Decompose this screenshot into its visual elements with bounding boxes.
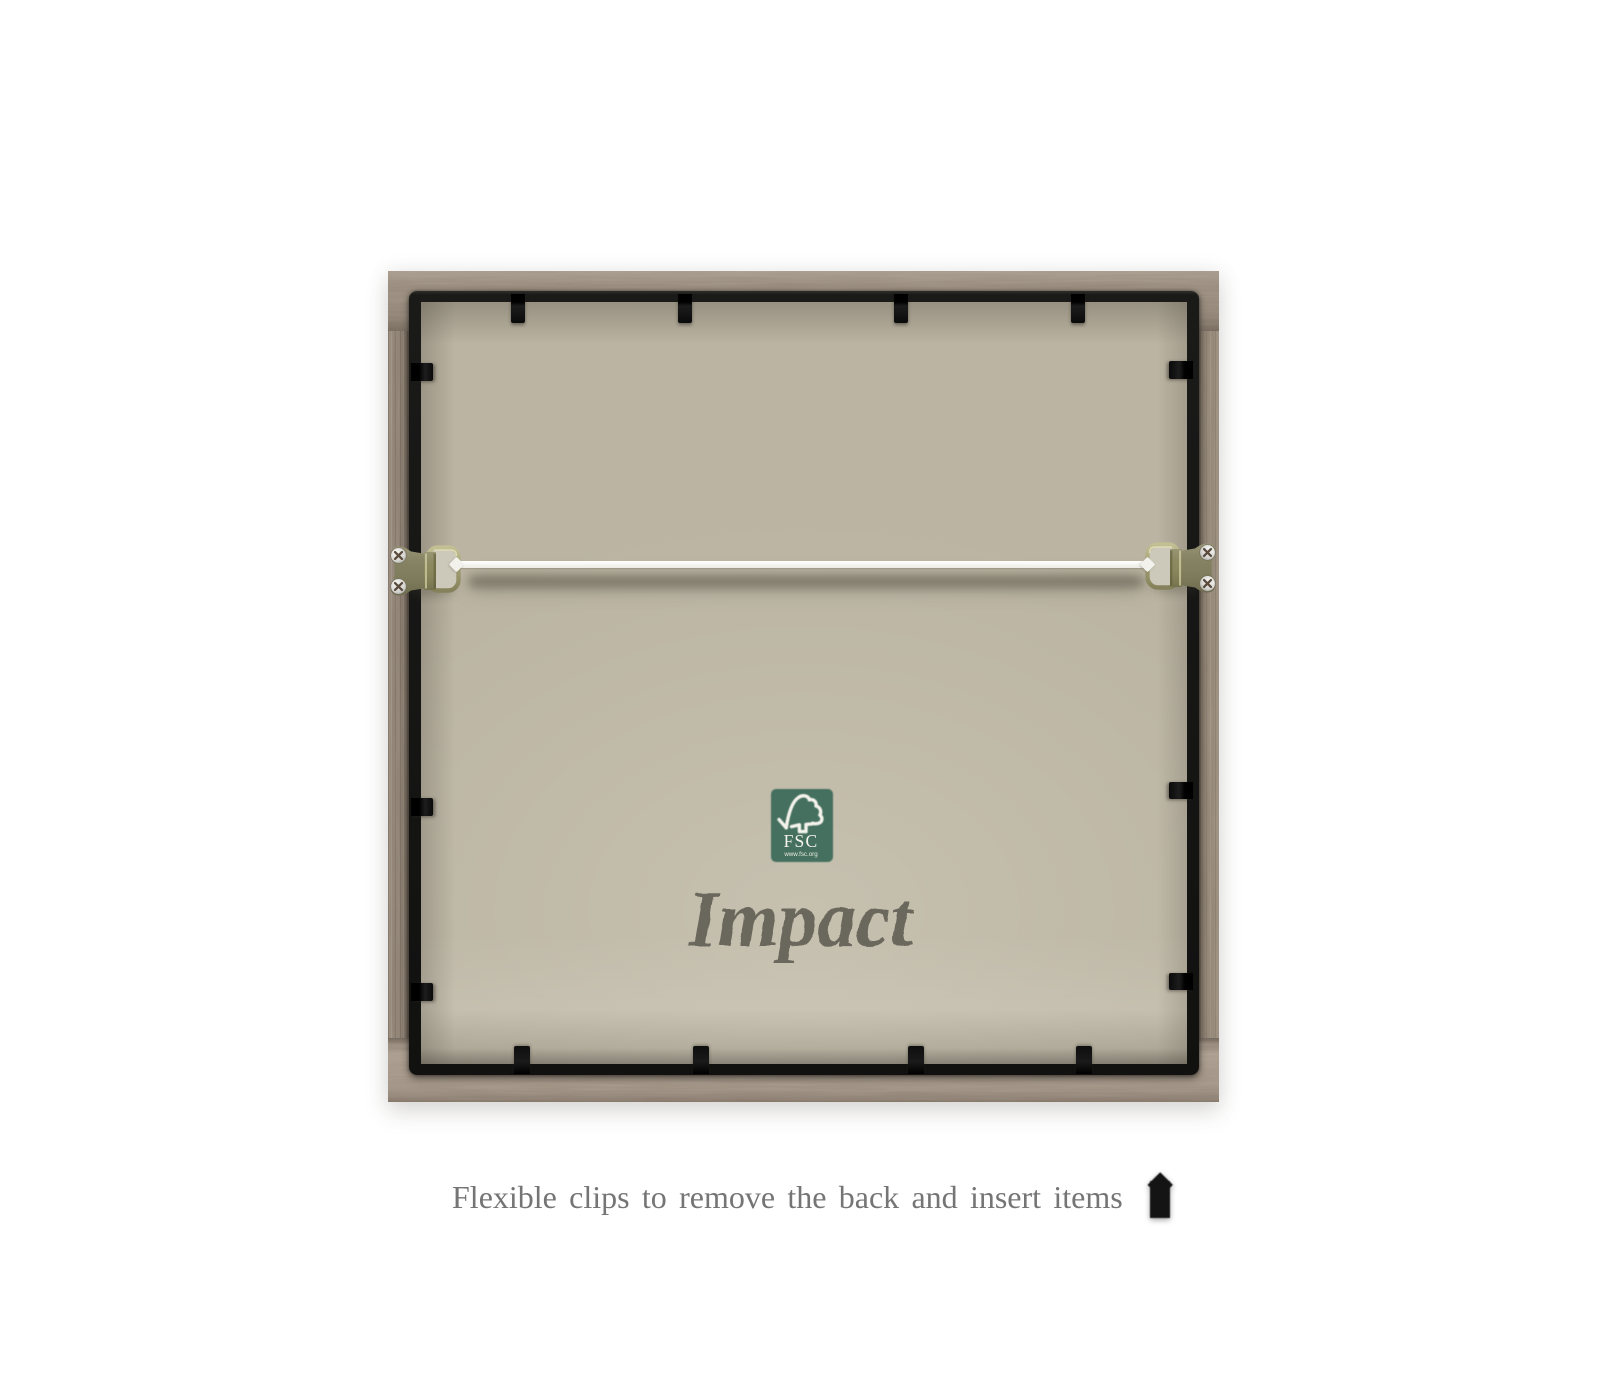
svg-text:Impact: Impact [687, 876, 915, 964]
svg-text:FSC: FSC [784, 831, 819, 851]
svg-text:Flexible clips to remove the b: Flexible clips to remove the back and in… [452, 1179, 1123, 1215]
svg-text:www.fsc.org: www.fsc.org [783, 851, 818, 858]
